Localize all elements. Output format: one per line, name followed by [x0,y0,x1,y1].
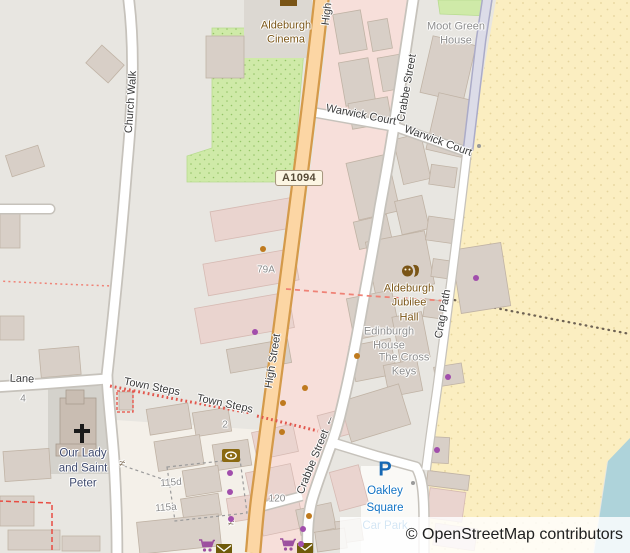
theatre-masks-icon [402,265,419,277]
map-canvas[interactable]: HighChurch WalkCrabbe StreetWarwick Cour… [0,0,630,553]
post-office-icon-2 [297,543,313,553]
attribution-bar: © OpenStreetMap contributors [340,517,630,553]
post-office-icon [216,544,232,553]
cinema-icon [280,0,297,6]
road-ref-shield: A1094 [275,170,323,186]
map-base-layer [0,0,630,553]
attribution-text[interactable]: © OpenStreetMap contributors [406,517,623,553]
bank-icon [222,449,240,462]
church-building [56,390,96,456]
